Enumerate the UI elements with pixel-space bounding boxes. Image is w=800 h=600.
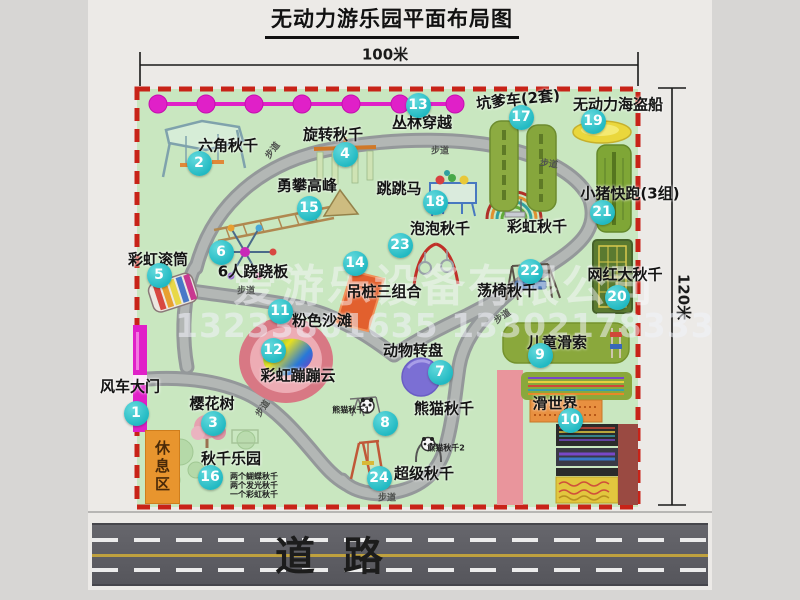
park-layout-flyer: 无动力游乐园平面布局图 100米 120米 爱游乐设备有限公司 13233861… <box>0 0 800 600</box>
climbing-peak-label: 勇攀高峰 <box>277 175 337 196</box>
marker-17: 17 <box>509 105 534 130</box>
marker-10: 10 <box>558 408 583 433</box>
marker-9: 9 <box>528 343 553 368</box>
marker-13: 13 <box>406 93 431 118</box>
trail-label: 步道 <box>431 144 449 157</box>
rest-area-label: 休息区 <box>152 440 173 494</box>
marker-11: 11 <box>268 299 293 324</box>
rotating-swing-label: 旋转秋千 <box>303 124 363 145</box>
marker-15: 15 <box>297 196 322 221</box>
windmill-gate-label: 风车大门 <box>100 376 160 397</box>
marker-1: 1 <box>124 401 149 426</box>
super-swing-label: 超级秋千 <box>394 463 454 484</box>
marker-14: 14 <box>343 251 368 276</box>
marker-24: 24 <box>367 466 392 491</box>
panda-swing-2-label: 熊猫秋千2 <box>427 443 465 454</box>
marker-21: 21 <box>590 200 615 225</box>
marker-7: 7 <box>428 360 453 385</box>
marker-2: 2 <box>187 151 212 176</box>
marker-23: 23 <box>388 233 413 258</box>
marker-4: 4 <box>333 142 358 167</box>
trail-label: 步道 <box>237 284 255 297</box>
marker-12: 12 <box>261 338 286 363</box>
bounce-cloud-label: 彩虹蹦蹦云 <box>260 365 335 386</box>
rainbow-swing-label: 彩虹秋千 <box>507 216 567 237</box>
trail-label: 步道 <box>539 155 559 170</box>
marker-18: 18 <box>423 190 448 215</box>
big-swing-label: 网红大秋千 <box>587 264 662 285</box>
swing-park-note-3: 一个彩虹秋千 <box>230 489 278 500</box>
marker-16: 16 <box>198 465 223 490</box>
panda-swing-label: 熊猫秋千 <box>414 398 474 419</box>
pig-run-label: 小猪快跑(3组) <box>580 183 679 204</box>
marker-8: 8 <box>373 411 398 436</box>
road <box>92 523 708 586</box>
height-dimension-label: 120米 <box>674 274 695 320</box>
marker-5: 5 <box>147 263 172 288</box>
road-label-char2: 路 <box>343 524 383 582</box>
bubble-swing-label: 泡泡秋千 <box>410 218 470 239</box>
slide-world-icon <box>497 370 638 505</box>
flyer-edge-line <box>88 511 712 513</box>
animal-carousel-label: 动物转盘 <box>383 340 443 361</box>
hanging-posts-label: 吊桩三组合 <box>346 281 421 302</box>
page-margin-right <box>712 0 800 600</box>
road-lane-line-bottom <box>92 568 708 572</box>
road-lane-line-top <box>92 538 708 542</box>
page-margin-left <box>0 0 88 600</box>
marker-3: 3 <box>201 411 226 436</box>
page-margin-bottom <box>88 590 712 600</box>
page-title: 无动力游乐园平面布局图 <box>265 3 519 39</box>
width-dimension-label: 100米 <box>362 44 408 65</box>
marker-6: 6 <box>209 240 234 265</box>
marker-22: 22 <box>518 259 543 284</box>
marker-20: 20 <box>605 285 630 310</box>
hexagon-swing-label: 六角秋千 <box>198 135 258 156</box>
rest-area-box: 休息区 <box>145 430 180 504</box>
road-center-line <box>92 554 708 557</box>
six-person-seesaw-label: 6人跷跷板 <box>218 261 288 282</box>
trail-label: 步道 <box>378 491 396 504</box>
pink-beach-label: 粉色沙滩 <box>292 310 352 331</box>
road-label-char1: 道 <box>275 524 315 582</box>
panda-swing-1-label: 熊猫秋千1 <box>332 405 370 416</box>
jumping-horse-label: 跳跳马 <box>376 178 421 199</box>
marker-19: 19 <box>581 109 606 134</box>
